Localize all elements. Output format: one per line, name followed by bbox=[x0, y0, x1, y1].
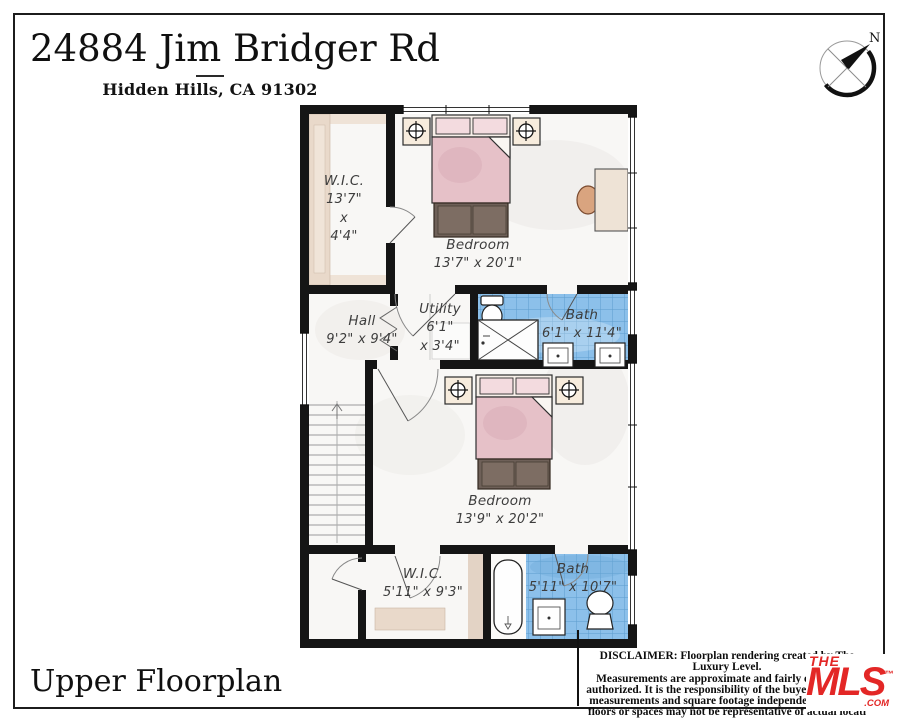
floorplan-page: 24884 Jim Bridger Rd Hidden Hills, CA 91… bbox=[0, 0, 897, 720]
mls-logo-mls: MLS™ bbox=[806, 662, 893, 702]
header: 24884 Jim Bridger Rd Hidden Hills, CA 91… bbox=[30, 28, 390, 99]
title-divider bbox=[196, 75, 224, 77]
compass-icon: N bbox=[803, 24, 893, 106]
page-subtitle: Hidden Hills, CA 91302 bbox=[30, 80, 390, 99]
mls-logo-com: .COM bbox=[864, 698, 889, 709]
room-label-wic-lower: W.I.C. 5'11" x 9'3" bbox=[353, 565, 493, 603]
mls-logo: THE MLS™ .COM bbox=[806, 654, 888, 711]
compass-needle bbox=[841, 44, 870, 69]
nightstand-lamp-icon bbox=[445, 377, 472, 404]
room-label-wic-upper: W.I.C. 13'7" x 4'4" bbox=[316, 172, 372, 247]
room-label-bedroom-lower: Bedroom 13'9" x 20'2" bbox=[420, 492, 580, 530]
disclaimer-separator bbox=[577, 630, 579, 706]
nightstand-lamp-icon bbox=[513, 118, 540, 145]
vanity-sink-icon bbox=[543, 343, 573, 367]
room-label-bath-lower: Bath 5'11" x 10'7" bbox=[513, 560, 633, 598]
bed-icon-upper bbox=[432, 115, 510, 237]
vanity-sink-icon bbox=[533, 599, 565, 635]
room-label-utility: Utility 6'1" x 3'4" bbox=[402, 300, 478, 356]
page-title: 24884 Jim Bridger Rd bbox=[30, 28, 390, 71]
bed-icon-lower bbox=[476, 375, 552, 489]
vanity-sink-icon bbox=[595, 343, 625, 367]
room-label-hall: Hall 9'2" x 9'4" bbox=[310, 312, 414, 350]
nightstand-lamp-icon bbox=[556, 377, 583, 404]
shower-icon bbox=[478, 320, 538, 360]
nightstand-lamp-icon bbox=[403, 118, 430, 145]
room-label-bath-upper: Bath 6'1" x 11'4" bbox=[530, 306, 634, 344]
mls-logo-tm: ™ bbox=[884, 669, 893, 679]
plan-title: Upper Floorplan bbox=[30, 664, 282, 699]
north-label: N bbox=[869, 31, 880, 46]
room-label-bedroom-upper: Bedroom 13'7" x 20'1" bbox=[398, 236, 558, 274]
